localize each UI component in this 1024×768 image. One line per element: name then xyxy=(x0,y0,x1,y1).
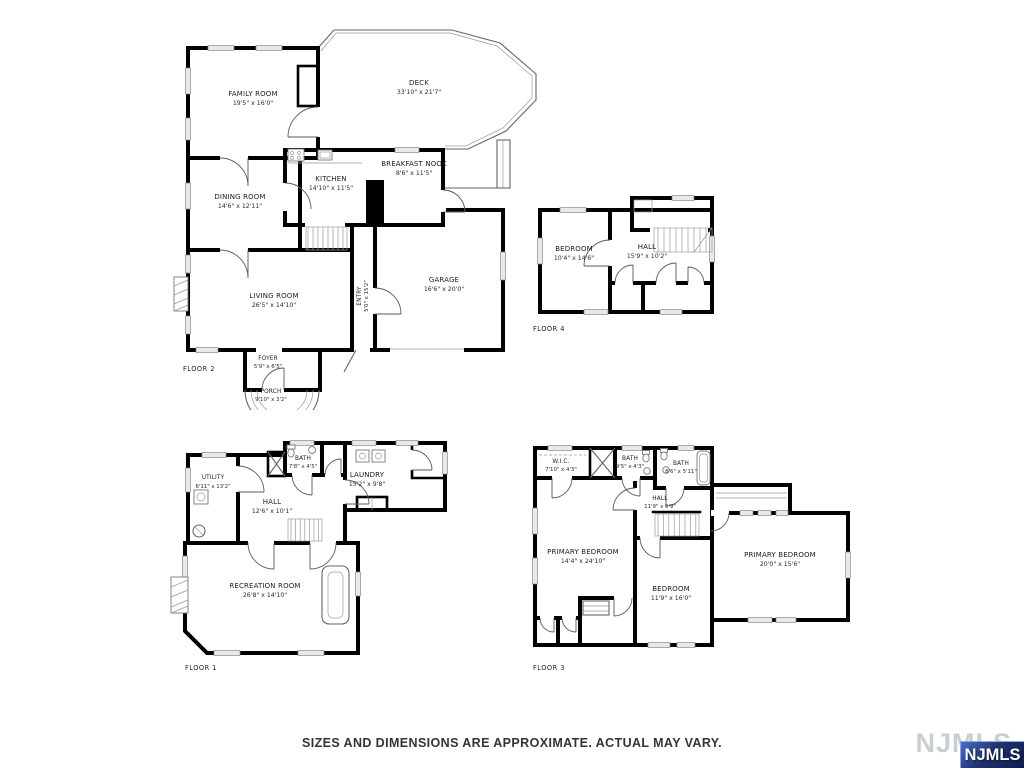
room-dims-wic: 7'10" x 4'3" xyxy=(545,467,577,473)
room-label-laundry: LAUNDRY xyxy=(350,471,385,479)
room-dims-hall: 15'9" x 10'2" xyxy=(627,253,667,260)
floor-4-plan: BEDROOM 10'4" x 14'6" HALL 15'9" x 10'2"… xyxy=(525,192,725,337)
floor1-labels: UTILITY 6'11" x 13'2" BATH 7'8" x 4'5" L… xyxy=(185,456,385,672)
room-label-hall: HALL xyxy=(263,498,281,506)
room-dims-bedroom: 11'9" x 16'0" xyxy=(651,595,691,602)
floor-1-plan: UTILITY 6'11" x 13'2" BATH 7'8" x 4'5" L… xyxy=(163,436,465,678)
room-label-kitchen: KITCHEN xyxy=(315,175,346,183)
room-label-bath-1: BATH xyxy=(622,456,638,462)
floor1-chimney-icon xyxy=(171,577,188,613)
room-dims-kitchen: 14'10" x 11'5" xyxy=(309,185,353,192)
room-dims-bath-2: 8'6" x 5'11" xyxy=(665,469,697,475)
floor2-stairs-icon xyxy=(306,227,347,250)
room-label-bath-2: BATH xyxy=(673,461,689,467)
floor1-sofa-icon xyxy=(322,566,349,624)
room-label-living-room: LIVING ROOM xyxy=(249,292,298,300)
room-dims-dining-room: 14'6" x 12'11" xyxy=(218,203,262,210)
room-dims-hall: 11'9" x 6'9" xyxy=(644,504,676,510)
room-label-porch: PORCH xyxy=(261,389,282,395)
room-dims-hall: 12'6" x 10'1" xyxy=(252,508,292,515)
room-label-breakfast-nook: BREAKFAST NOOK xyxy=(381,160,447,168)
room-dims-recreation-room: 26'8" x 14'10" xyxy=(243,592,287,599)
room-dims-foyer: 5'9" x 6'5" xyxy=(254,364,282,370)
room-label-entry: ENTRY xyxy=(357,286,363,306)
room-label-hall: HALL xyxy=(652,496,668,502)
room-dims-entry: 5'0" x 15'2" xyxy=(364,280,370,312)
room-dims-laundry: 15'2" x 9'8" xyxy=(349,481,386,488)
room-dims-primary-bedroom-left: 14'4" x 24'10" xyxy=(561,558,605,565)
floor-2-label: FLOOR 2 xyxy=(183,365,215,373)
floorplan-page: FAMILY ROOM 19'5" x 16'0" DECK 33'10" x … xyxy=(0,0,1024,768)
room-label-bedroom: BEDROOM xyxy=(555,245,593,253)
room-dims-living-room: 26'5" x 14'10" xyxy=(252,302,296,309)
floor2-labels: FAMILY ROOM 19'5" x 16'0" DECK 33'10" x … xyxy=(183,79,464,403)
room-label-utility: UTILITY xyxy=(202,475,225,481)
room-label-family-room: FAMILY ROOM xyxy=(228,90,277,98)
room-dims-utility: 6'11" x 13'2" xyxy=(195,484,230,490)
room-label-foyer: FOYER xyxy=(258,356,278,362)
room-dims-family-room: 19'5" x 16'0" xyxy=(233,100,273,107)
room-label-primary-bedroom-left: PRIMARY BEDROOM xyxy=(547,548,619,556)
room-label-wic: W.I.C. xyxy=(552,459,569,465)
floor3-stairs-icon xyxy=(655,514,699,536)
floor1-laundry-appliances-icon xyxy=(356,450,385,462)
njmls-badge: NJMLS xyxy=(960,741,1024,768)
room-dims-bedroom: 10'4" x 14'6" xyxy=(554,255,594,262)
floor-1-label: FLOOR 1 xyxy=(185,664,217,672)
room-label-bath: BATH xyxy=(295,456,311,462)
room-dims-primary-bedroom-right: 20'0" x 15'6" xyxy=(760,561,800,568)
floor3-walls xyxy=(535,448,848,645)
room-dims-breakfast-nook: 8'6" x 11'5" xyxy=(396,170,433,177)
room-label-bedroom: BEDROOM xyxy=(652,585,690,593)
floor-4-label: FLOOR 4 xyxy=(533,325,565,333)
room-label-deck: DECK xyxy=(409,79,429,87)
room-dims-bath: 7'8" x 4'5" xyxy=(289,464,317,470)
floor1-stairs-icon xyxy=(288,519,322,541)
floor-3-plan: W.I.C. 7'10" x 4'3" BATH 9'5" x 4'3" BAT… xyxy=(525,436,870,678)
room-label-garage: GARAGE xyxy=(429,276,459,284)
njmls-logo: NJMLS NJMLS xyxy=(914,723,1024,768)
floor1-windows xyxy=(183,441,448,656)
room-label-hall: HALL xyxy=(638,243,656,251)
room-label-dining-room: DINING ROOM xyxy=(214,193,265,201)
floor1-utility-fixtures-icon xyxy=(193,490,208,537)
floor2-chimney-icon xyxy=(174,277,188,311)
floor-2-plan: FAMILY ROOM 19'5" x 16'0" DECK 33'10" x … xyxy=(160,18,560,410)
room-dims-bath-1: 9'5" x 4'3" xyxy=(616,464,644,470)
room-dims-porch: 9'10" x 3'2" xyxy=(255,397,287,403)
room-label-primary-bedroom-right: PRIMARY BEDROOM xyxy=(744,551,816,559)
room-label-recreation-room: RECREATION ROOM xyxy=(229,582,300,590)
disclaimer-text: SIZES AND DIMENSIONS ARE APPROXIMATE. AC… xyxy=(0,736,1024,750)
room-dims-garage: 16'6" x 20'0" xyxy=(424,286,464,293)
floor-3-label: FLOOR 3 xyxy=(533,664,565,672)
floor4-labels: BEDROOM 10'4" x 14'6" HALL 15'9" x 10'2"… xyxy=(533,243,667,333)
room-dims-deck: 33'10" x 21'7" xyxy=(397,89,441,96)
